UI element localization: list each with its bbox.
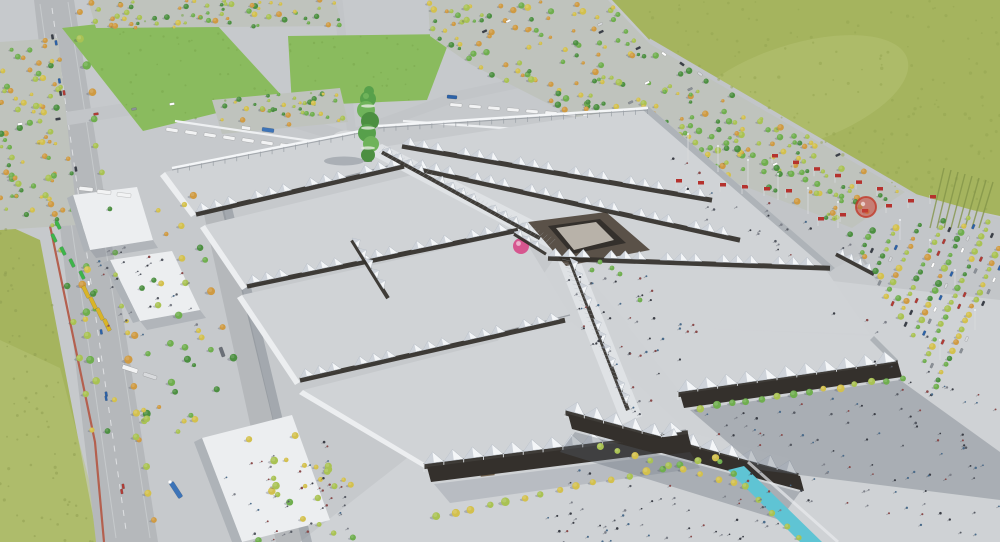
rendering-canvas bbox=[0, 0, 1000, 542]
aerial-rendering bbox=[0, 0, 1000, 542]
